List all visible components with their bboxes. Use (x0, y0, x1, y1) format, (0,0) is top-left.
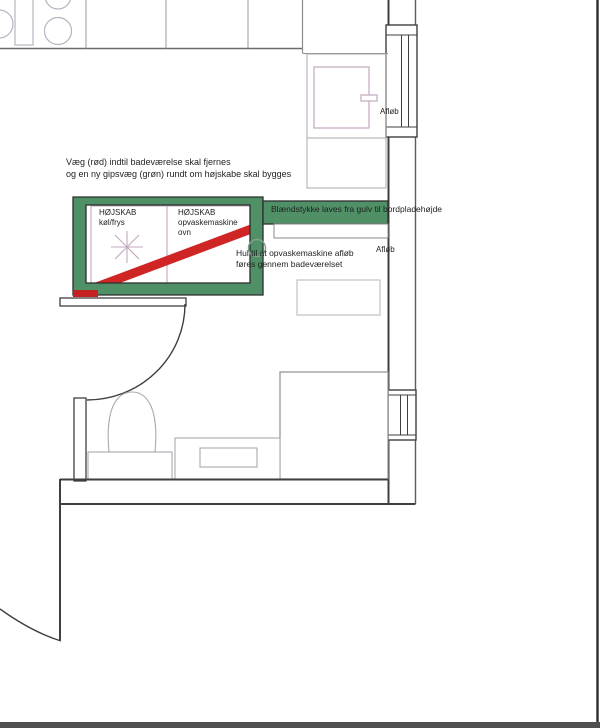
wall-note-line1: Væg (rød) indtil badeværelse skal fjerne… (66, 157, 291, 169)
countertop-edge-box (274, 224, 388, 238)
drain-label-middle: Afløb (376, 245, 395, 254)
floor-plan-page: Væg (rød) indtil badeværelse skal fjerne… (0, 0, 600, 728)
tall-cabinet-dishwasher-label: HØJSKAB opvaskemaskine ovn (178, 208, 238, 238)
hole-note-annotation: Hul til at opvaskemaskine afløb føres ge… (236, 248, 354, 270)
toilet-bowl (108, 392, 156, 452)
cabinet-fridge-title: HØJSKAB (99, 208, 136, 218)
worktop-rect-icon (15, 0, 33, 45)
fridge-star-icon (111, 231, 143, 263)
red-wall-removal-mark (73, 290, 98, 297)
wall-note-annotation: Væg (rød) indtil badeværelse skal fjerne… (66, 157, 291, 180)
hob-circle-icon (45, 18, 72, 45)
sink-circle-icon (0, 10, 13, 38)
blaendstykke-text: Blændstykke laves fra gulv til bordplade… (271, 204, 442, 215)
window-symbol-top (386, 25, 417, 137)
wall-note-line2: og en ny gipsvæg (grøn) rundt om højskab… (66, 169, 291, 181)
bathroom-fixtures (88, 280, 388, 480)
door-leaf-wall-segment (74, 398, 86, 481)
cabinet-dw-sub2: ovn (178, 228, 238, 238)
shower-square (280, 372, 388, 479)
kitchen-appliance-symbols (0, 0, 72, 45)
window-symbol-middle (388, 390, 416, 440)
drain-top-text: Afløb (380, 107, 399, 116)
floor-plan-drawing (0, 0, 600, 728)
washer-box (297, 280, 380, 315)
cabinet-fridge-sub: køl/frys (99, 218, 136, 228)
tall-cabinet-fridge-label: HØJSKAB køl/frys (99, 208, 136, 228)
hole-note-line2: føres gennem badeværelset (236, 259, 354, 270)
toilet-tank (88, 452, 172, 480)
door-swing-arc (87, 304, 185, 400)
shower-door-handle (361, 95, 377, 101)
blaendstykke-label: Blændstykke laves fra gulv til bordplade… (271, 204, 442, 215)
hole-note-line1: Hul til at opvaskemaskine afløb (236, 248, 354, 259)
cabinet-dw-title: HØJSKAB (178, 208, 238, 218)
bottom-walls (0, 479, 416, 641)
bathroom-top-wall (60, 298, 186, 306)
vanity-cabinet (175, 438, 280, 480)
shower-fixture-block (303, 54, 389, 189)
bottom-border-bar (0, 722, 600, 728)
drain-label-top: Afløb (380, 107, 399, 116)
lower-door-swing-arc (0, 609, 61, 641)
drain-middle-text: Afløb (376, 245, 395, 254)
cabinet-dw-sub1: opvaskemaskine (178, 218, 238, 228)
hob-circle-top-icon (45, 0, 71, 9)
